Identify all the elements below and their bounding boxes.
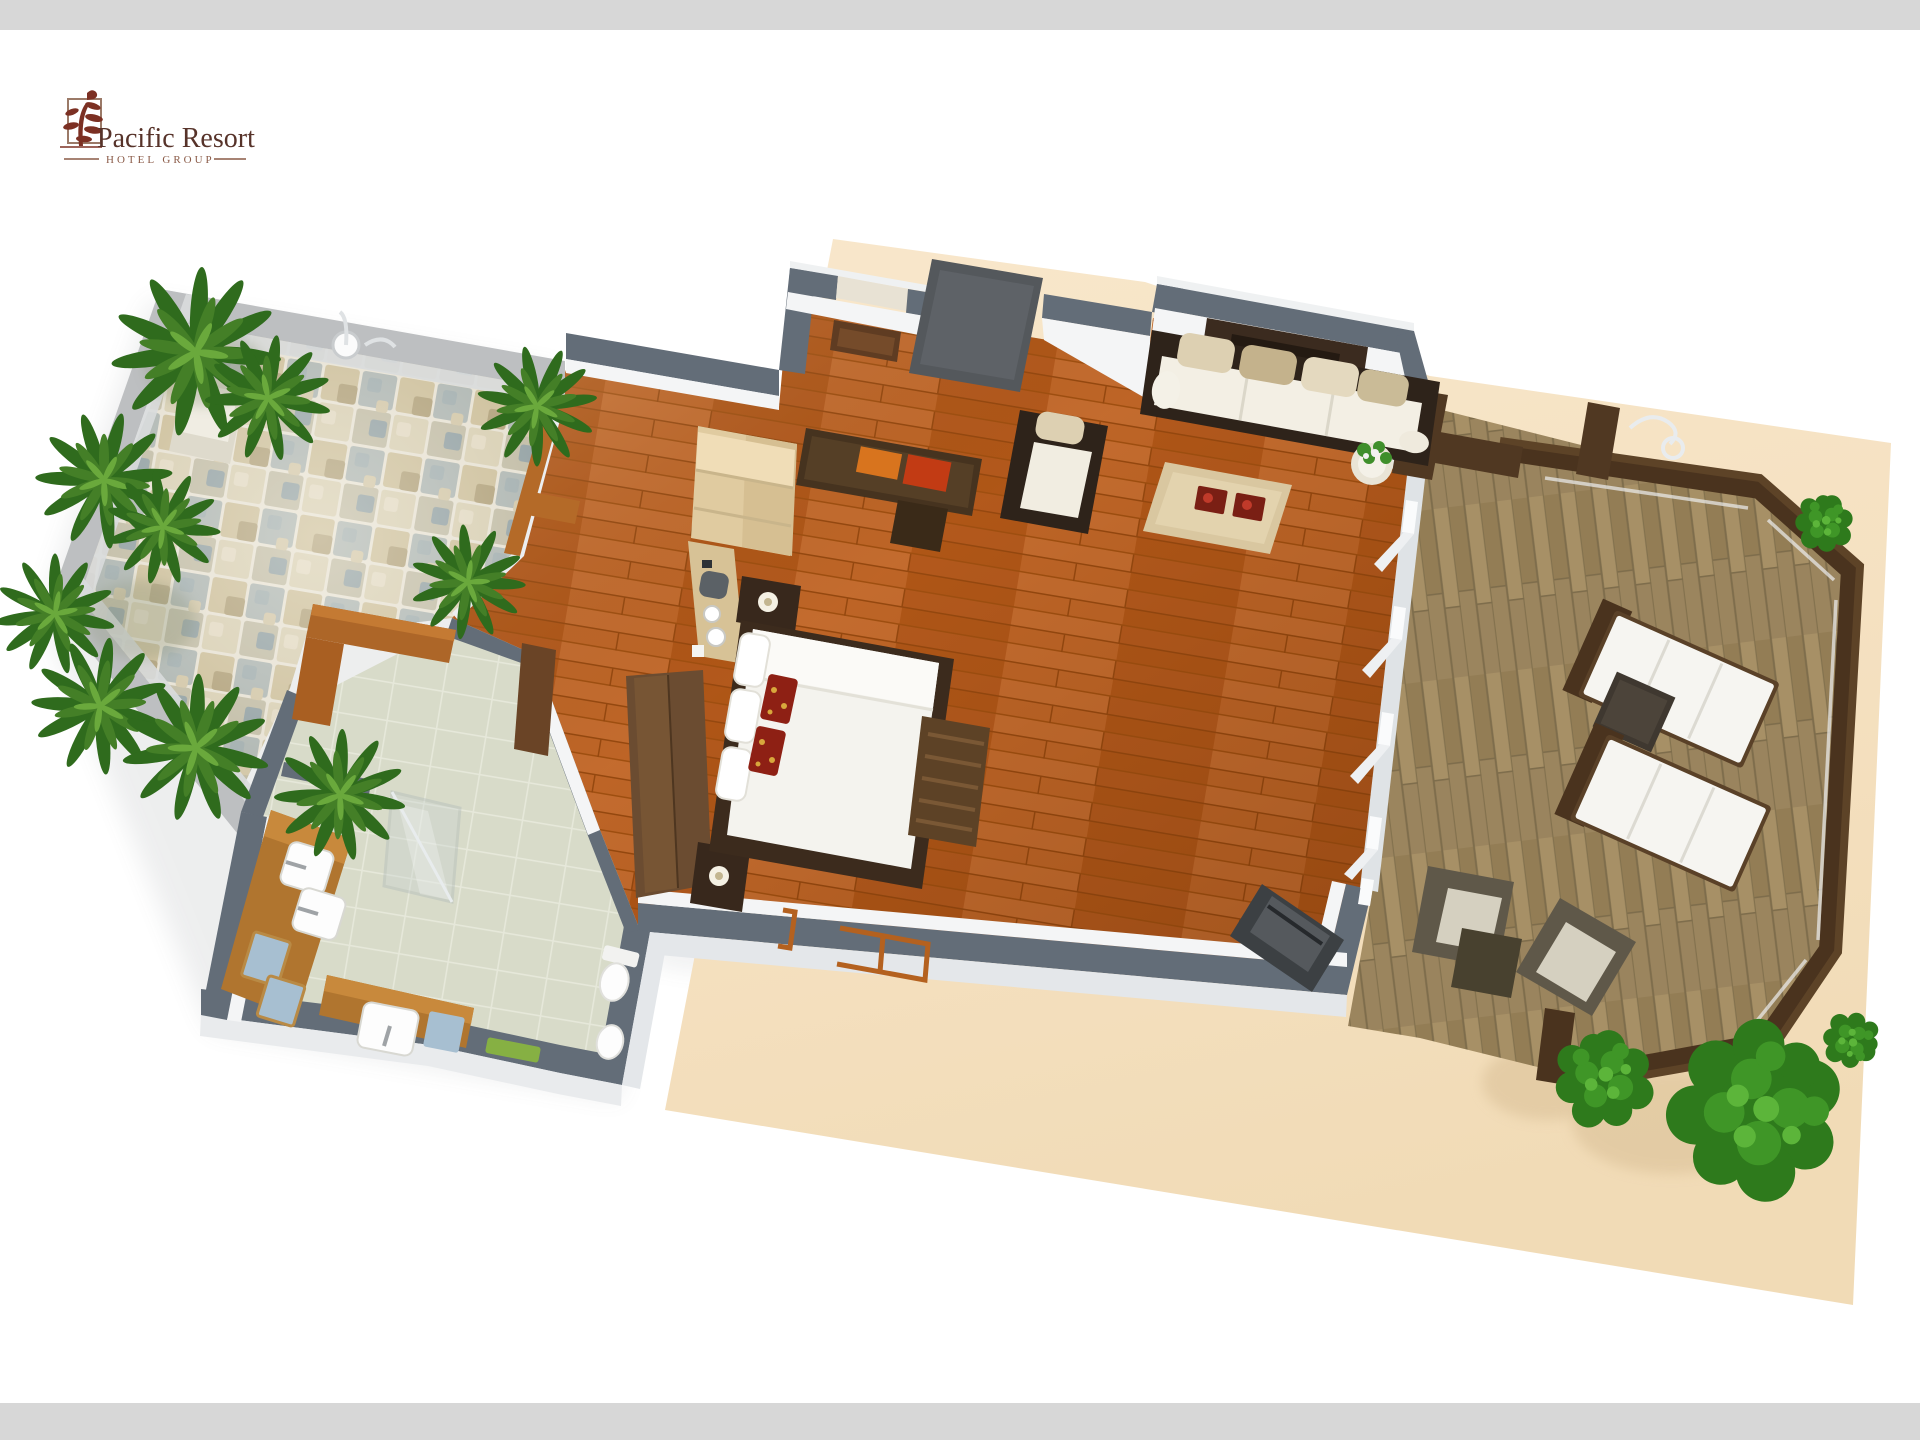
svg-text:Pacific Resort: Pacific Resort	[97, 123, 255, 154]
svg-text:HOTEL GROUP: HOTEL GROUP	[106, 154, 215, 166]
